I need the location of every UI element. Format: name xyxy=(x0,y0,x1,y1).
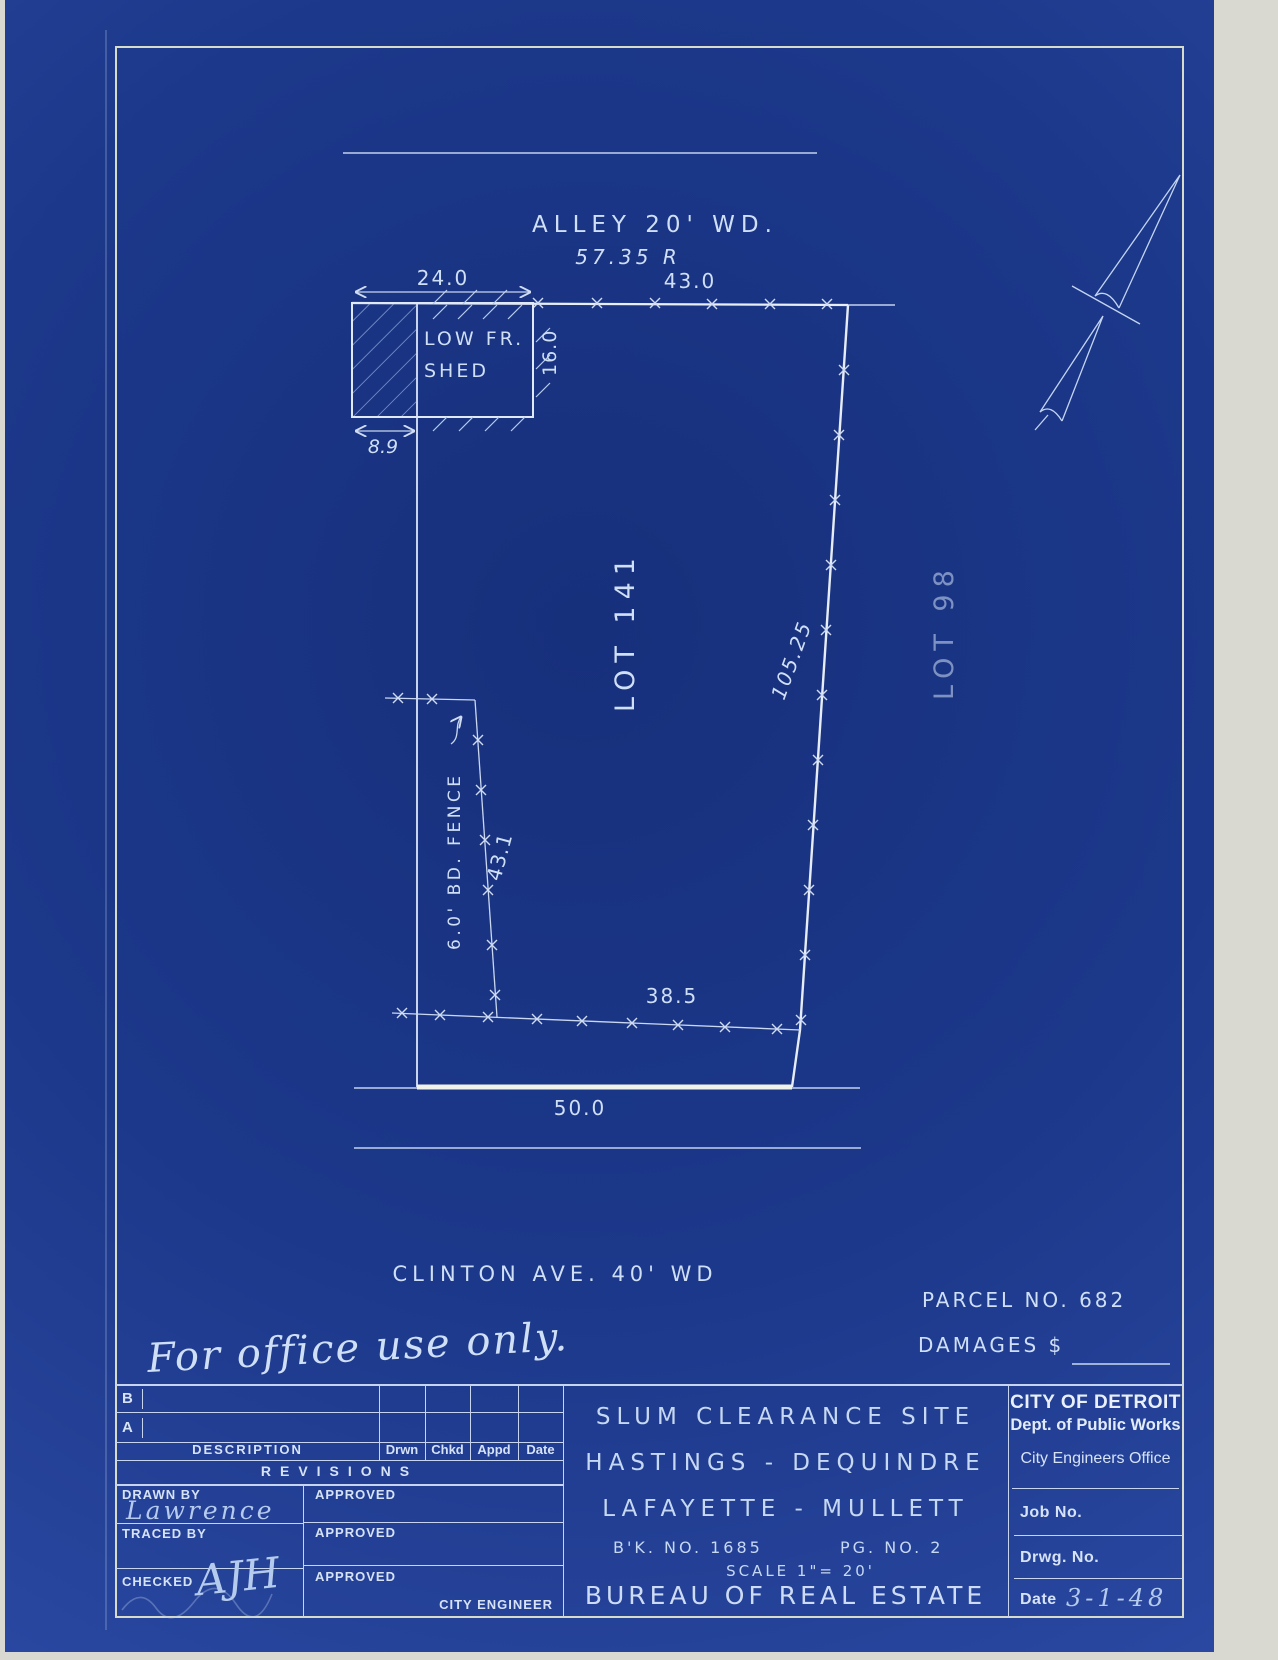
agency-block: CITY OF DETROIT Dept. of Public Works Ci… xyxy=(1008,1384,1183,1617)
agency-line-2: Dept. of Public Works xyxy=(1008,1416,1183,1435)
lot-98-label: LOT 98 xyxy=(929,563,960,700)
sheet-border-frame xyxy=(116,47,1183,1617)
damages-label: DAMAGES $ xyxy=(918,1333,1064,1357)
date-label: Date xyxy=(1020,1591,1057,1609)
dim-8-9: 8.9 xyxy=(368,436,398,458)
col-date: Date xyxy=(518,1442,563,1460)
revisions-title: REVISIONS xyxy=(116,1460,563,1485)
col-line-2 xyxy=(425,1384,426,1460)
date-value: 3-1-48 xyxy=(1066,1584,1167,1612)
col-appd: Appd xyxy=(470,1442,518,1460)
approved-label-3: APPROVED xyxy=(315,1569,396,1584)
revision-row-b-label: B xyxy=(122,1390,134,1407)
alley-label: ALLEY 20' WD. xyxy=(532,212,778,238)
north-arrow xyxy=(1035,175,1180,430)
drawn-by-signature: Lawrence xyxy=(126,1496,275,1525)
approved-cell-2: APPROVED xyxy=(303,1522,563,1566)
col-description: DESCRIPTION xyxy=(116,1442,379,1460)
dim-24: 24.0 xyxy=(417,266,470,290)
page-number: PG. NO. 2 xyxy=(840,1538,943,1557)
drawn-by-cell: DRAWN BY Lawrence xyxy=(116,1484,303,1524)
bureau-label: BUREAU OF REAL ESTATE xyxy=(563,1581,1008,1610)
dim-50: 50.0 xyxy=(554,1096,607,1120)
revisions-header-row: DESCRIPTION Drwn Chkd Appd Date xyxy=(116,1442,563,1461)
office-use-note: For office use only. xyxy=(145,1314,570,1382)
agency-rule-2 xyxy=(1014,1535,1183,1536)
street-label: CLINTON AVE. 40' WD xyxy=(392,1262,717,1286)
parcel-number-label: PARCEL NO. 682 xyxy=(922,1288,1126,1312)
drawing-title-block: SLUM CLEARANCE SITE HASTINGS - DEQUINDRE… xyxy=(563,1384,1008,1617)
row-b-tick xyxy=(142,1389,143,1409)
scale-note: SCALE 1"= 20' xyxy=(563,1562,1008,1580)
approved-label-1: APPROVED xyxy=(315,1487,396,1502)
dim-105-25: 105.25 xyxy=(766,617,817,702)
fence-label: 6.0' BD. FENCE xyxy=(445,772,465,950)
checked-signature-scrawl xyxy=(118,1576,298,1622)
dim-16: 16.0 xyxy=(539,330,561,376)
agency-line-3: City Engineers Office xyxy=(1008,1450,1183,1468)
signoff-block: DRAWN BY Lawrence TRACED BY CHECKED AJH … xyxy=(116,1484,563,1617)
checked-cell: CHECKED AJH xyxy=(116,1568,303,1617)
city-engineer-label: CITY ENGINEER xyxy=(439,1597,553,1612)
traced-by-label: TRACED BY xyxy=(122,1526,207,1541)
approved-label-2: APPROVED xyxy=(315,1525,396,1540)
agency-rule-1 xyxy=(1012,1488,1179,1489)
col-line-1 xyxy=(379,1384,380,1460)
row-a-tick xyxy=(142,1418,143,1438)
revision-row-a: A xyxy=(116,1412,563,1443)
title-line-3: LAFAYETTE - MULLETT xyxy=(563,1496,1008,1522)
revision-row-a-label: A xyxy=(122,1419,134,1436)
title-line-1: SLUM CLEARANCE SITE xyxy=(563,1404,1008,1430)
revision-row-b: B xyxy=(116,1384,563,1413)
revisions-block: B A DESCRIPTION Drwn Chkd Appd Date REVI… xyxy=(116,1384,563,1617)
shed-label-line1: LOW FR. xyxy=(424,328,524,350)
approved-cell-3: APPROVED CITY ENGINEER xyxy=(303,1565,563,1617)
dim-38-5: 38.5 xyxy=(646,984,699,1008)
agency-rule-3 xyxy=(1014,1578,1183,1579)
lot-141-label: LOT 141 xyxy=(610,551,641,712)
drwg-no-label: Drwg. No. xyxy=(1020,1549,1099,1567)
col-line-4 xyxy=(518,1384,519,1460)
col-line-3 xyxy=(470,1384,471,1460)
col-drwn: Drwn xyxy=(379,1442,425,1460)
approved-cell-1: APPROVED xyxy=(303,1484,563,1523)
shed-label-line2: SHED xyxy=(424,360,489,382)
title-line-2: HASTINGS - DEQUINDRE xyxy=(563,1450,1008,1476)
blueprint-scan: ALLEY 20' WD. 57.35 R 24.0 43.0 LOW FR. … xyxy=(0,0,1278,1660)
book-number: B'K. NO. 1685 xyxy=(613,1538,763,1557)
job-no-label: Job No. xyxy=(1020,1504,1082,1522)
east-fence-marks xyxy=(796,365,849,1025)
dim-43: 43.0 xyxy=(664,269,717,293)
alley-record-dim: 57.35 R xyxy=(575,245,681,269)
title-block: B A DESCRIPTION Drwn Chkd Appd Date REVI… xyxy=(116,1384,1183,1617)
col-chkd: Chkd xyxy=(425,1442,470,1460)
agency-line-1: CITY OF DETROIT xyxy=(1008,1392,1183,1414)
